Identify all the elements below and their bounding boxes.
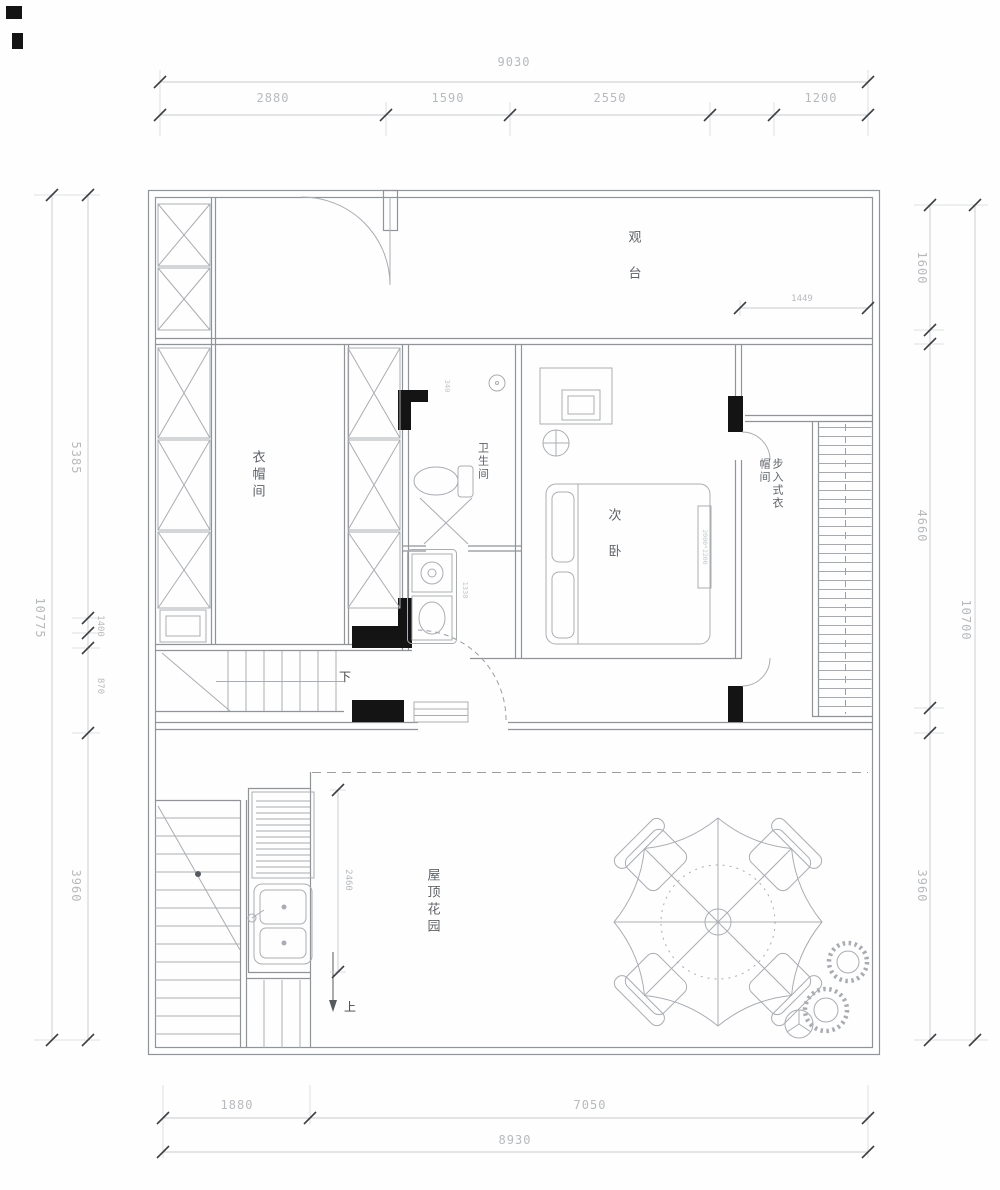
room-label-bath: 卫生间 [477,442,490,481]
dim-left-seg4: 3960 [69,870,83,903]
dim-left-overall: 10775 [33,597,47,638]
dim-bottom-seg2: 7050 [574,1098,607,1112]
dim-top-seg1: 2880 [257,91,290,105]
dim-top-seg4: 1200 [805,91,838,105]
dim-right-seg1: 1600 [915,252,929,285]
stair-up-mark: 上 [344,998,356,1015]
dim-deck-width: 1449 [791,294,813,304]
bed-size-tag: 2000*2200 [701,529,709,564]
dim-top-seg3: 2550 [594,91,627,105]
dim-left-seg1: 5385 [69,442,83,475]
stair-down-mark: 下 [339,668,351,685]
room-label-garden: 屋顶花园 [425,868,440,936]
dim-left-seg3: 870 [95,678,105,694]
room-label-cloak: 衣帽间 [250,450,265,501]
floor-plan-sheet: 9030 2880 1590 2550 1200 1880 7050 8930 … [0,0,1000,1190]
dim-top-overall: 9030 [498,55,531,69]
room-label-walkin: 步入式衣 帽间 [758,458,784,510]
dim-bottom-seg1: 1880 [221,1098,254,1112]
dim-right-overall: 10700 [959,599,973,640]
walls [149,191,880,1055]
dim-vanity-detail: 1330 [461,582,469,599]
dim-right-seg2: 4660 [915,510,929,543]
dim-left-seg2: 1400 [95,615,105,637]
room-label-bedroom: 次 卧 [606,508,621,561]
dim-bath-detail: 340 [443,380,451,393]
plan-linework [0,0,1000,1190]
dim-top-seg2: 1590 [432,91,465,105]
dim-kitchen-depth: 2460 [343,869,353,891]
room-label-deck: 观 台 [626,230,641,283]
dim-right-seg3: 3960 [915,870,929,903]
wall-piers [6,6,743,722]
fixtures [155,197,872,1048]
dim-bottom-overall: 8930 [499,1133,532,1147]
